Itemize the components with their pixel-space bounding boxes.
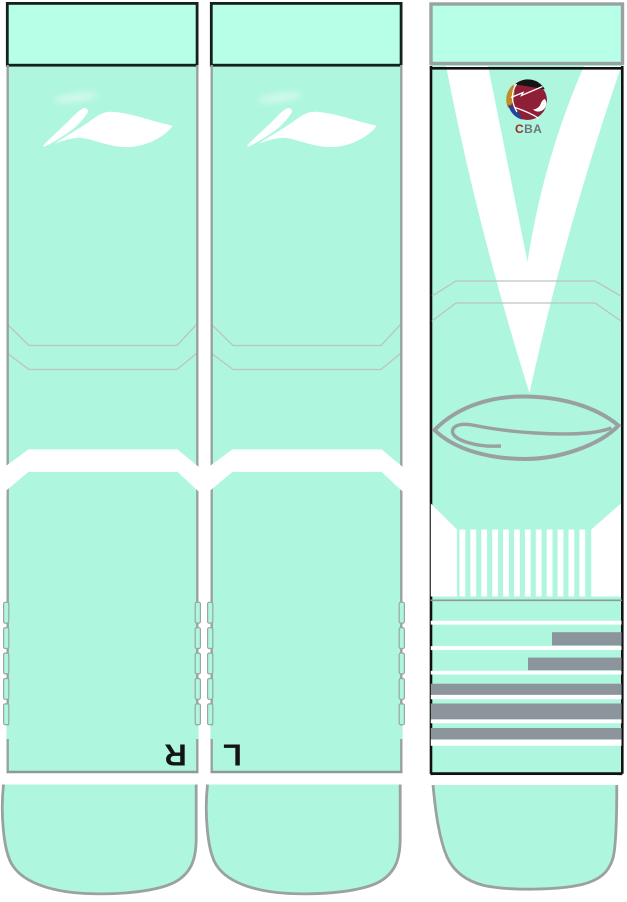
svg-text:CBA: CBA (515, 122, 542, 136)
svg-text:L: L (223, 738, 242, 773)
svg-text:R: R (164, 738, 186, 773)
